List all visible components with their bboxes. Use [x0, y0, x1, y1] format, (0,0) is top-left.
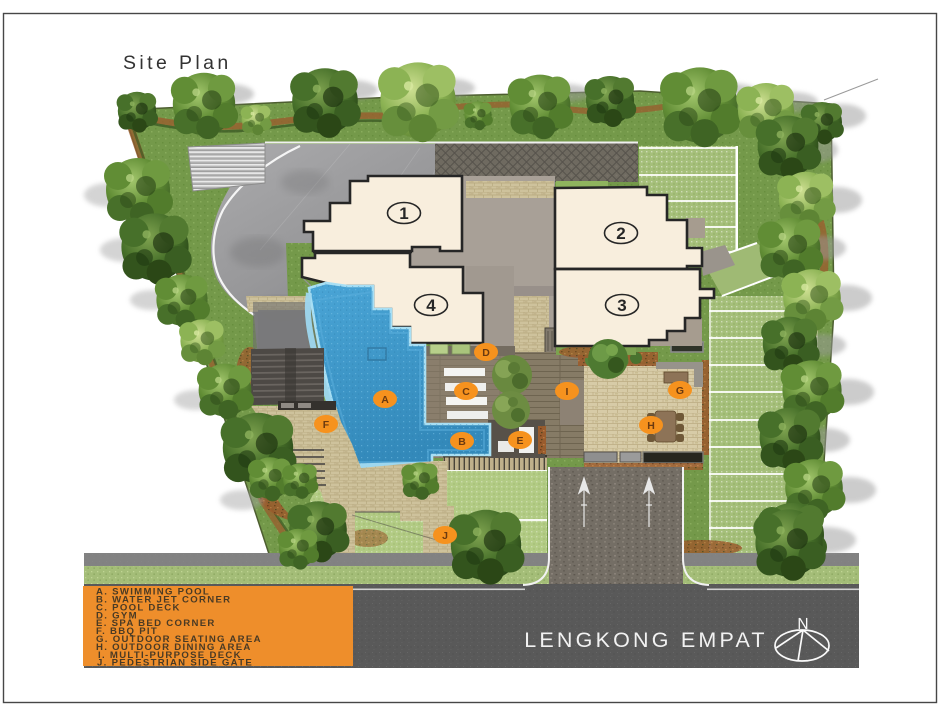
svg-text:H: H — [647, 420, 655, 432]
svg-text:D: D — [482, 347, 490, 359]
svg-text:2: 2 — [616, 224, 625, 243]
svg-text:F: F — [323, 419, 330, 431]
svg-text:LENGKONG EMPAT: LENGKONG EMPAT — [524, 628, 768, 652]
svg-text:E: E — [516, 435, 523, 447]
svg-text:3: 3 — [617, 296, 626, 315]
svg-text:Site Plan: Site Plan — [123, 52, 232, 74]
svg-text:4: 4 — [426, 296, 436, 315]
svg-text:G: G — [676, 385, 684, 397]
svg-text:I: I — [566, 386, 569, 398]
svg-text:B: B — [458, 436, 466, 448]
svg-text:A: A — [381, 394, 389, 406]
svg-text:C: C — [462, 386, 470, 398]
svg-text:J: J — [442, 530, 448, 542]
svg-text:J. PEDESTRIAN SIDE GATE: J. PEDESTRIAN SIDE GATE — [97, 658, 253, 669]
svg-text:N: N — [797, 616, 808, 633]
svg-text:1: 1 — [399, 204, 408, 223]
